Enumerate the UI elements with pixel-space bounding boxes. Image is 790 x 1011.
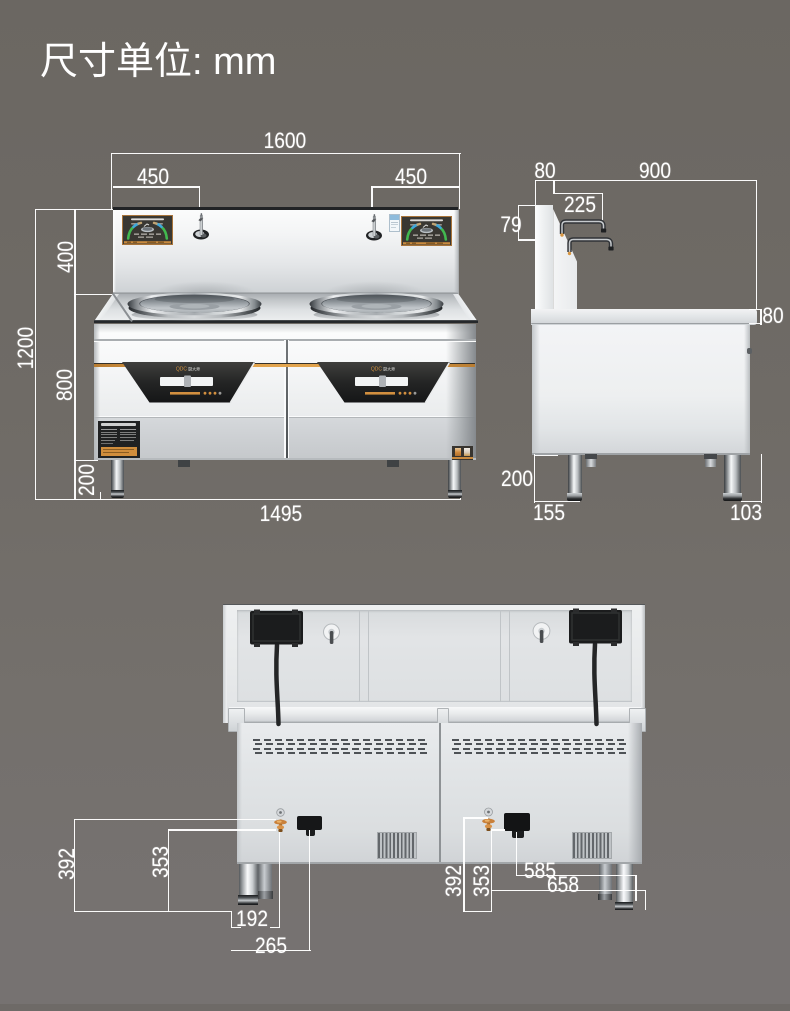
svg-text:QDC 厨大师: QDC 厨大师 [176, 366, 200, 373]
svg-text:QDC 厨大师: QDC 厨大师 [371, 366, 395, 373]
